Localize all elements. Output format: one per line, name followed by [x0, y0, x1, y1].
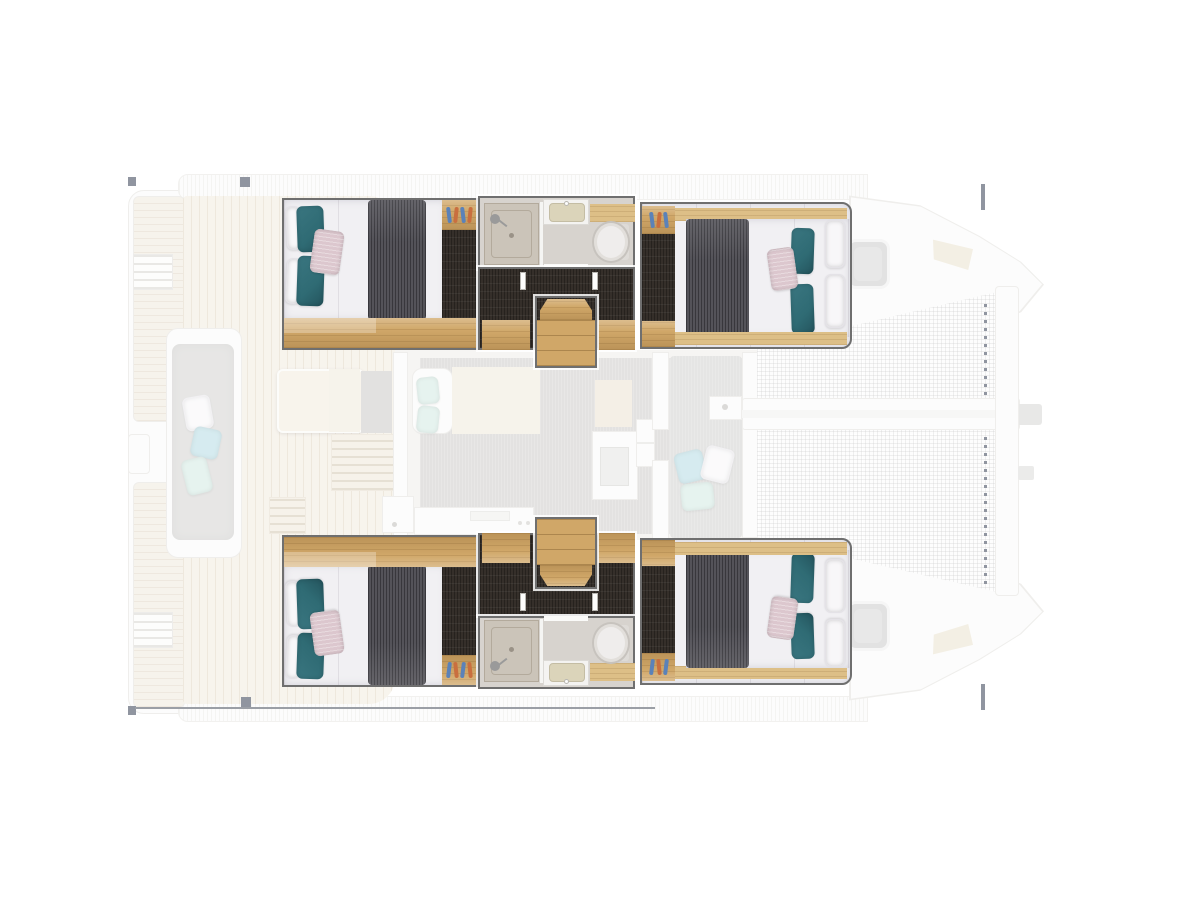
cabin-floor — [642, 566, 675, 653]
transom-steps-port — [133, 254, 173, 290]
port-aft-cabin — [282, 198, 478, 350]
hatch-glass — [854, 247, 882, 281]
bottle-icon — [446, 207, 452, 223]
galley-dot-2 — [526, 521, 530, 525]
port-deck-hatch — [846, 239, 890, 289]
bottle-icon — [467, 207, 473, 223]
vanity-counter — [543, 660, 589, 686]
bottle-icon — [446, 662, 452, 678]
bottle-icon — [467, 662, 473, 678]
nav-panel — [600, 447, 629, 486]
stair-treads — [537, 320, 595, 366]
transom-steps-stbd — [133, 612, 173, 648]
transom-center-fitting — [128, 434, 150, 474]
stbd-aft-cabin — [282, 535, 478, 687]
port-fwd-cabin — [640, 202, 852, 349]
hull-waterline — [135, 707, 655, 709]
bottle-icon — [663, 659, 669, 675]
shower-tray — [484, 203, 539, 265]
cabin-cabinet — [442, 200, 476, 230]
stbd-fwd-cabin — [640, 538, 852, 685]
door-threshold — [544, 616, 588, 621]
corridor-wood-right — [598, 320, 635, 350]
cabin-bench — [642, 540, 675, 566]
shroud-chainplate-stbd — [981, 684, 985, 710]
salon-fwd-cabinet — [595, 380, 632, 427]
bottle-icon — [649, 212, 655, 228]
cabin-cabinet — [442, 655, 476, 685]
bench-step — [284, 318, 376, 333]
crossbeam-fitting — [1018, 466, 1034, 480]
cabin-door-leaf-2 — [592, 593, 598, 611]
cockpit-cabinet — [361, 371, 392, 433]
toiletries — [442, 200, 476, 230]
stair-treads — [537, 519, 595, 565]
galley-sink — [470, 511, 510, 521]
shower-drain — [509, 647, 514, 652]
corridor-wood-left — [482, 533, 530, 563]
toilet-bowl — [592, 221, 630, 263]
bottle-icon — [460, 207, 466, 223]
faucet-icon — [564, 679, 569, 684]
stbd-deck-hatch — [846, 601, 890, 651]
bath-wood-counter — [590, 204, 635, 222]
shelf-bottom — [675, 542, 847, 555]
faucet-icon — [564, 201, 569, 206]
fwd-cockpit-back — [742, 352, 758, 538]
corridor-wood-left — [482, 320, 530, 350]
pillow-white-1 — [825, 619, 845, 667]
bottle-icon — [656, 659, 662, 675]
galley-appliance — [382, 496, 414, 533]
cabin-floor — [442, 567, 476, 655]
cabin-door-leaf-1 — [520, 593, 526, 611]
cabin-bench — [642, 321, 675, 347]
pillow-white-2 — [825, 559, 845, 613]
cabin-floor — [442, 230, 476, 318]
cabin-door-leaf-2 — [592, 272, 598, 290]
bath-wood-counter — [590, 663, 635, 681]
stair-landing — [540, 565, 592, 586]
toiletries — [442, 655, 476, 685]
cabin-door-leaf-1 — [520, 272, 526, 290]
console-dot — [722, 404, 728, 410]
salon-front-wall-bottom — [652, 460, 669, 540]
bottle-icon — [460, 662, 466, 678]
trampoline-lacing-port — [984, 300, 987, 395]
bottle-icon — [663, 212, 669, 228]
pillow-white-1 — [825, 220, 845, 268]
cockpit-slat-locker — [269, 497, 306, 534]
stair-landing — [540, 299, 592, 320]
sofa-pillow-mint-2 — [416, 405, 441, 434]
bench-step — [284, 552, 376, 567]
corridor-wood-right — [598, 533, 635, 563]
shroud-chainplate-port — [981, 184, 985, 210]
toilet-bowl — [592, 622, 630, 664]
stbd-stairs — [535, 517, 597, 589]
davit-mark-port — [240, 177, 250, 187]
appliance-knob — [392, 522, 397, 527]
bottle-icon — [453, 662, 459, 678]
bed-duvet — [686, 219, 749, 337]
cockpit-slat-seat — [331, 434, 397, 491]
stbd-bathroom — [478, 616, 635, 689]
toiletries — [642, 653, 675, 681]
salon-sofa-seat — [452, 367, 540, 434]
pillow-pink — [766, 595, 799, 640]
bow-roller — [1016, 404, 1042, 425]
sofa-pillow-mint-1 — [416, 376, 441, 405]
bowsprit-channel — [742, 410, 1020, 418]
vanity-counter — [543, 199, 589, 225]
pillow-pink — [766, 246, 799, 291]
port-stairs — [535, 296, 597, 368]
bed-duvet — [368, 565, 426, 685]
port-bathroom — [478, 196, 635, 269]
bed-duvet — [686, 550, 749, 668]
cabin-floor — [642, 234, 675, 321]
bottle-icon — [453, 207, 459, 223]
bed-duvet — [368, 200, 426, 320]
shower-drain — [509, 233, 514, 238]
pillow-teal-2 — [790, 553, 815, 604]
hull-mark-aft-port — [128, 177, 136, 186]
hatch-glass — [854, 609, 882, 643]
toiletries — [642, 206, 675, 234]
pillow-white-2 — [825, 274, 845, 328]
shower-tray — [484, 620, 539, 682]
cabin-cabinet — [642, 206, 675, 234]
trampoline-lacing-stbd — [984, 436, 987, 584]
cockpit-aft-bench — [329, 369, 360, 432]
pillow-pink — [309, 609, 345, 657]
pillow-pink — [309, 228, 345, 276]
bottle-icon — [649, 659, 655, 675]
pillow-teal-2 — [790, 284, 815, 335]
galley-dot-1 — [518, 521, 522, 525]
ghosted-deck-layer — [0, 0, 1200, 900]
salon-front-wall-top — [652, 352, 669, 430]
shelf-bottom — [675, 332, 847, 345]
bottle-icon — [656, 212, 662, 228]
cabin-cabinet — [642, 653, 675, 681]
forward-crossbeam — [995, 286, 1019, 596]
floorplan-canvas — [0, 0, 1200, 900]
fwd-pillow-mint — [680, 481, 716, 511]
